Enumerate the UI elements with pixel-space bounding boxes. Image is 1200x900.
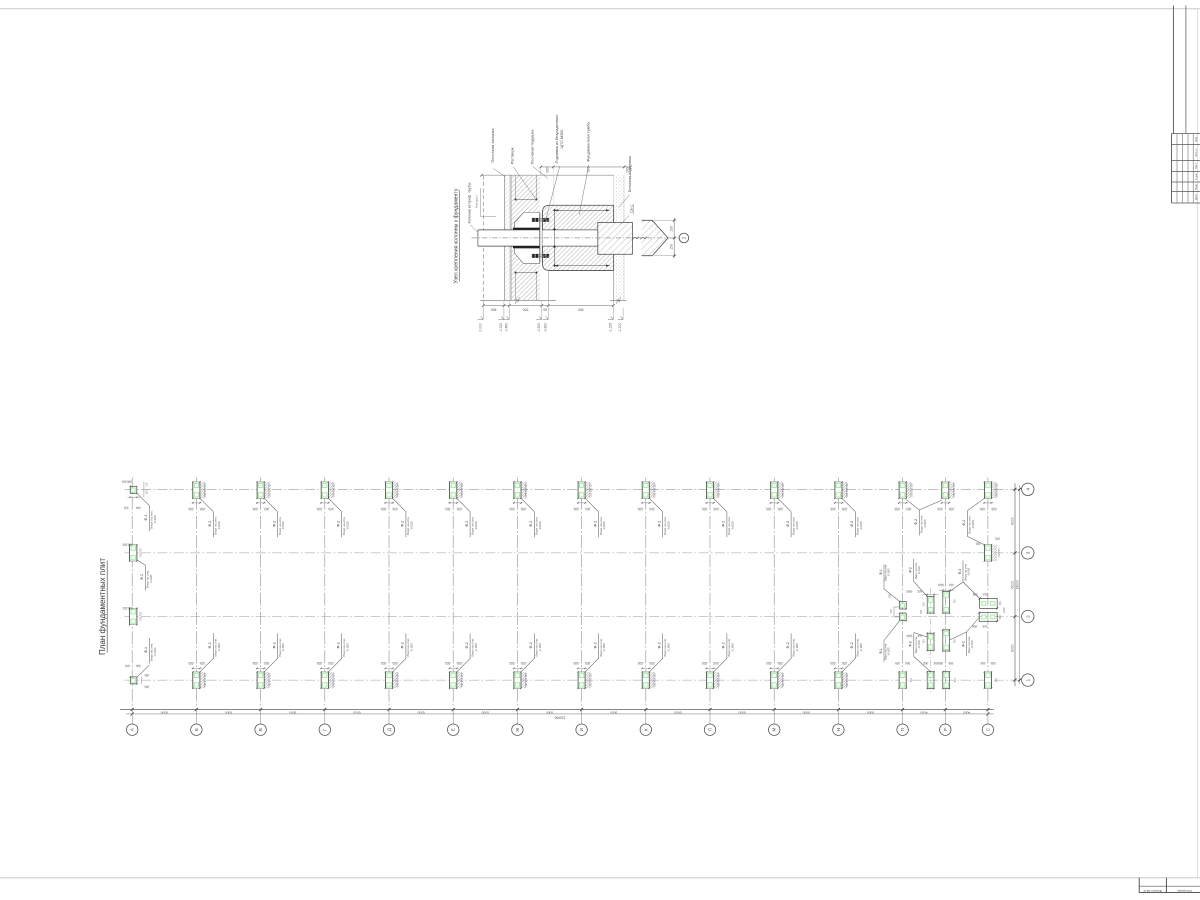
svg-text:-0.150: -0.150 — [499, 323, 503, 333]
svg-text:-0.620: -0.620 — [859, 521, 863, 530]
svg-text:Ф-2: Ф-2 — [401, 642, 405, 648]
svg-text:План фундаментных плит: План фундаментных плит — [98, 558, 107, 655]
svg-text:-0.620: -0.620 — [149, 574, 153, 583]
svg-text:200 500 200: 200 500 200 — [397, 483, 400, 497]
svg-text:-0.605: -0.605 — [887, 647, 891, 656]
svg-text:Узел крепления колонны к фунда: Узел крепления колонны к фундаменту — [453, 188, 459, 283]
svg-text:600: 600 — [992, 507, 997, 511]
svg-text:600: 600 — [574, 507, 579, 511]
svg-text:200 500 200: 200 500 200 — [525, 483, 528, 497]
svg-text:300 910 300: 300 910 300 — [525, 673, 528, 687]
svg-text:300: 300 — [144, 674, 149, 678]
svg-text:300: 300 — [128, 607, 133, 611]
svg-text:150: 150 — [125, 664, 130, 668]
svg-text:-0.620: -0.620 — [345, 521, 349, 530]
svg-text:300 910 300: 300 910 300 — [461, 673, 464, 687]
svg-text:Ф-1: Ф-1 — [144, 647, 148, 653]
svg-text:-0.620: -0.620 — [281, 521, 285, 530]
svg-text:200 500 200: 200 500 200 — [718, 483, 721, 497]
svg-text:575: 575 — [983, 625, 988, 629]
svg-text:Фундаментная тумба: Фундаментная тумба — [586, 121, 591, 161]
svg-text:Песчаная подушка: Песчаная подушка — [529, 129, 534, 165]
svg-text:-0.605: -0.605 — [971, 520, 975, 529]
svg-text:Ф-2: Ф-2 — [786, 521, 790, 527]
svg-text:-0.620: -0.620 — [538, 643, 542, 652]
svg-text:600: 600 — [200, 662, 205, 666]
svg-text:200 500 200: 200 500 200 — [782, 483, 785, 497]
svg-text:300 910 300: 300 910 300 — [204, 673, 207, 687]
svg-text:600: 600 — [714, 662, 719, 666]
svg-text:Ф-2: Ф-2 — [337, 642, 341, 648]
svg-text:-0.620: -0.620 — [602, 521, 606, 530]
svg-text:300: 300 — [127, 480, 132, 484]
svg-text:-0.620: -0.620 — [917, 640, 921, 649]
svg-text:В: В — [258, 728, 263, 731]
svg-text:910: 910 — [910, 677, 913, 682]
svg-text:600: 600 — [702, 507, 707, 511]
svg-text:И: И — [579, 728, 584, 731]
svg-text:600: 600 — [778, 662, 783, 666]
svg-text:Ф-2: Ф-2 — [529, 521, 533, 527]
svg-text:600: 600 — [649, 507, 654, 511]
svg-text:200 500 200: 200 500 200 — [910, 483, 913, 497]
svg-text:Кол.уч: Кол.уч — [1194, 148, 1198, 156]
svg-text:Ф-2: Ф-2 — [909, 641, 913, 647]
svg-text:600: 600 — [906, 662, 911, 666]
svg-text:Ф-2: Ф-2 — [658, 642, 662, 648]
svg-text:-0.620: -0.620 — [217, 643, 221, 652]
svg-text:600: 600 — [585, 662, 590, 666]
svg-text:Ф-2: Ф-2 — [529, 642, 533, 648]
svg-text:Ф-2: Ф-2 — [658, 521, 662, 527]
svg-text:600: 600 — [906, 507, 911, 511]
svg-text:600: 600 — [585, 507, 590, 511]
svg-text:300: 300 — [144, 685, 149, 689]
svg-text:200 500 200: 200 500 200 — [953, 483, 956, 497]
svg-text:Формат А2х3: Формат А2х3 — [1143, 889, 1162, 893]
svg-text:750: 750 — [953, 639, 956, 644]
svg-text:-0.620: -0.620 — [410, 643, 414, 652]
svg-text:Ф-2: Ф-2 — [272, 642, 276, 648]
svg-text:800: 800 — [972, 625, 977, 629]
svg-text:600: 600 — [638, 662, 643, 666]
svg-text:600: 600 — [264, 507, 269, 511]
svg-text:250: 250 — [890, 609, 893, 614]
svg-text:600: 600 — [264, 662, 269, 666]
svg-text:600: 600 — [253, 662, 258, 666]
svg-text:П: П — [900, 728, 905, 731]
svg-text:М: М — [772, 728, 777, 732]
svg-text:Ф-2: Ф-2 — [850, 642, 854, 648]
svg-text:600: 600 — [521, 507, 526, 511]
svg-text:512: 512 — [995, 537, 1000, 541]
svg-text:600: 600 — [714, 507, 719, 511]
svg-text:200 500 200: 200 500 200 — [268, 483, 271, 497]
svg-text:300 910 300: 300 910 300 — [782, 673, 785, 687]
svg-text:6000: 6000 — [1011, 581, 1015, 589]
svg-text:6000: 6000 — [1011, 517, 1015, 525]
svg-text:300: 300 — [136, 506, 141, 510]
svg-text:Низ (усл.): Низ (усл.) — [474, 195, 478, 208]
svg-text:200 500 200: 200 500 200 — [996, 483, 999, 497]
svg-text:500: 500 — [920, 609, 923, 614]
svg-text:Ф-2: Ф-2 — [908, 567, 912, 573]
svg-text:Ф-2: Ф-2 — [140, 574, 144, 580]
svg-text:Р: Р — [943, 728, 948, 731]
svg-text:600: 600 — [991, 662, 996, 666]
svg-text:300 910 300: 300 910 300 — [589, 673, 592, 687]
svg-text:600: 600 — [574, 662, 579, 666]
svg-text:600: 600 — [445, 662, 450, 666]
svg-text:Ф-2: Ф-2 — [208, 642, 212, 648]
svg-text:600: 600 — [317, 507, 322, 511]
svg-text:300 910 300: 300 910 300 — [654, 673, 657, 687]
svg-text:300: 300 — [136, 664, 141, 668]
svg-text:80: 80 — [543, 308, 547, 312]
svg-text:600: 600 — [253, 507, 258, 511]
svg-text:600: 600 — [328, 507, 333, 511]
svg-text:-0.620: -0.620 — [410, 521, 414, 530]
svg-text:500: 500 — [999, 601, 1002, 606]
svg-text:Бетонная подготовка: Бетонная подготовка — [628, 155, 632, 192]
svg-text:600: 600 — [766, 507, 771, 511]
svg-text:300: 300 — [128, 543, 133, 547]
svg-text:Ф-2: Ф-2 — [914, 519, 918, 525]
svg-text:-0.620: -0.620 — [966, 568, 970, 577]
svg-text:-0.620: -0.620 — [666, 521, 670, 530]
svg-text:200 500 200: 200 500 200 — [654, 483, 657, 497]
svg-text:600: 600 — [393, 507, 398, 511]
svg-text:-0.620: -0.620 — [543, 323, 547, 333]
svg-text:600: 600 — [778, 507, 783, 511]
svg-text:200 500 200: 200 500 200 — [461, 483, 464, 497]
svg-text:600: 600 — [949, 507, 954, 511]
svg-text:Н: Н — [836, 728, 841, 731]
svg-text:ЦПС М300: ЦПС М300 — [560, 130, 564, 149]
svg-text:Ф-2: Ф-2 — [722, 642, 726, 648]
svg-text:Ф-1: Ф-1 — [879, 569, 883, 575]
svg-text:6000: 6000 — [1011, 644, 1015, 652]
svg-text:-0.620: -0.620 — [917, 566, 921, 575]
svg-text:600: 600 — [393, 662, 398, 666]
svg-text:600: 600 — [831, 507, 836, 511]
svg-text:300 910 300: 300 910 300 — [846, 673, 849, 687]
svg-text:600: 600 — [189, 507, 194, 511]
svg-text:575: 575 — [983, 593, 988, 597]
svg-text:-0.620: -0.620 — [281, 643, 285, 652]
svg-text:-0.620: -0.620 — [153, 647, 157, 656]
svg-text:600: 600 — [189, 662, 194, 666]
svg-text:750: 750 — [923, 639, 926, 644]
svg-text:Л: Л — [708, 728, 713, 731]
svg-text:900: 900 — [578, 308, 584, 312]
svg-text:-1.225: -1.225 — [608, 323, 612, 333]
svg-text:Ф-2: Ф-2 — [962, 520, 966, 526]
svg-text:300 910 300: 300 910 300 — [333, 673, 336, 687]
svg-text:1000: 1000 — [938, 583, 944, 587]
svg-text:А: А — [130, 728, 135, 731]
svg-text:150: 150 — [669, 244, 673, 250]
svg-text:750: 750 — [953, 599, 956, 604]
svg-text:200 500 200: 200 500 200 — [589, 483, 592, 497]
svg-text:Изм.: Изм. — [1194, 136, 1198, 142]
svg-text:-0.450: -0.450 — [504, 323, 508, 333]
svg-text:-0.620: -0.620 — [859, 643, 863, 652]
svg-text:100: 100 — [146, 482, 149, 487]
svg-text:-0.620: -0.620 — [538, 521, 542, 530]
svg-text:750 750: 750 750 — [998, 548, 1001, 557]
svg-text:N док: N док — [1194, 173, 1198, 181]
svg-text:600: 600 — [895, 662, 900, 666]
svg-text:3000: 3000 — [1003, 607, 1006, 613]
svg-text:Ф-2: Ф-2 — [786, 642, 790, 648]
svg-text:Ф-2: Ф-2 — [593, 642, 597, 648]
svg-text:Дата: Дата — [1194, 194, 1198, 200]
svg-text:Ф-2: Ф-2 — [272, 521, 276, 527]
svg-text:-0.620: -0.620 — [217, 521, 221, 530]
svg-text:-0.620: -0.620 — [666, 643, 670, 652]
svg-text:600: 600 — [649, 662, 654, 666]
svg-text:Д: Д — [387, 728, 392, 731]
svg-text:-0.620: -0.620 — [345, 643, 349, 652]
svg-text:150: 150 — [669, 226, 673, 232]
svg-text:600: 600 — [457, 662, 462, 666]
svg-text:600: 600 — [938, 662, 943, 666]
svg-text:300 910 300: 300 910 300 — [718, 673, 721, 687]
svg-text:600: 600 — [766, 662, 771, 666]
svg-text:600: 600 — [831, 662, 836, 666]
svg-text:1000: 1000 — [906, 590, 912, 594]
svg-text:750 750: 750 750 — [140, 612, 143, 621]
svg-text:600: 600 — [381, 507, 386, 511]
svg-text:200 500 200: 200 500 200 — [204, 483, 207, 497]
svg-text:Ф-2: Ф-2 — [961, 641, 965, 647]
svg-text:-0.620: -0.620 — [795, 643, 799, 652]
svg-text:200 500 200: 200 500 200 — [333, 483, 336, 497]
svg-text:600: 600 — [842, 662, 847, 666]
svg-text:360: 360 — [976, 542, 981, 546]
svg-text:Ф-2: Ф-2 — [208, 521, 212, 527]
svg-text:600: 600 — [317, 662, 322, 666]
svg-text:600: 600 — [457, 507, 462, 511]
svg-text:Подливка из безусадочного: Подливка из безусадочного — [555, 115, 559, 164]
svg-text:600: 600 — [521, 662, 526, 666]
svg-text:Подп.: Подп. — [1194, 183, 1198, 190]
svg-text:-1.100: -1.100 — [618, 323, 622, 333]
svg-text:Ф-1: Ф-1 — [144, 515, 148, 521]
svg-text:600: 600 — [937, 507, 942, 511]
svg-text:600: 600 — [200, 507, 205, 511]
svg-text:500: 500 — [999, 615, 1002, 620]
svg-text:-0.620: -0.620 — [153, 515, 157, 524]
svg-text:Ф-2: Ф-2 — [401, 521, 405, 527]
svg-text:600: 600 — [842, 507, 847, 511]
svg-text:600: 600 — [510, 507, 515, 511]
svg-text:300 910 300: 300 910 300 — [397, 673, 400, 687]
svg-text:100: 100 — [545, 167, 549, 173]
svg-text:600: 600 — [328, 662, 333, 666]
svg-text:Песчаная засыпка: Песчаная засыпка — [490, 128, 495, 163]
svg-text:Ф-2: Ф-2 — [593, 521, 597, 527]
svg-text:Колонна из проф. трубы: Колонна из проф. трубы — [467, 182, 471, 223]
svg-text:-0.605: -0.605 — [887, 568, 891, 577]
svg-text:Ж: Ж — [515, 728, 520, 732]
svg-text:750: 750 — [923, 602, 926, 607]
svg-text:600: 600 — [923, 662, 928, 666]
svg-text:600: 600 — [981, 662, 986, 666]
svg-text:Ф-2: Ф-2 — [337, 521, 341, 527]
svg-text:-0.620: -0.620 — [602, 643, 606, 652]
svg-text:-0.620: -0.620 — [474, 521, 478, 530]
svg-text:Лист: Лист — [1194, 162, 1198, 168]
svg-text:Е: Е — [451, 728, 456, 731]
svg-text:300 910 300: 300 910 300 — [268, 673, 271, 687]
svg-text:150: 150 — [124, 506, 129, 510]
svg-text:600: 600 — [638, 507, 643, 511]
svg-text:Ф-1: Ф-1 — [879, 648, 883, 654]
svg-text:-0.620: -0.620 — [970, 640, 974, 649]
svg-text:Б: Б — [194, 728, 199, 731]
svg-text:Ростверк: Ростверк — [510, 147, 515, 164]
svg-text:С: С — [985, 728, 990, 731]
svg-text:Ф-2: Ф-2 — [722, 521, 726, 527]
svg-text:600: 600 — [980, 507, 985, 511]
svg-text:600: 600 — [702, 662, 707, 666]
svg-text:0.000: 0.000 — [478, 323, 482, 332]
svg-text:Ф-2: Ф-2 — [850, 521, 854, 527]
svg-text:600: 600 — [949, 662, 954, 666]
svg-text:Ф-2: Ф-2 — [465, 521, 469, 527]
svg-text:1000: 1000 — [906, 634, 912, 638]
svg-text:910: 910 — [995, 677, 998, 682]
svg-text:Ск-1: Ск-1 — [630, 205, 634, 213]
svg-text:К: К — [643, 728, 648, 731]
svg-text:600: 600 — [895, 507, 900, 511]
svg-text:102000: 102000 — [554, 715, 565, 719]
svg-text:-0.620: -0.620 — [731, 521, 735, 530]
svg-text:910: 910 — [954, 677, 957, 682]
svg-text:-0.620: -0.620 — [731, 643, 735, 652]
svg-text:300: 300 — [146, 490, 149, 495]
svg-text:600: 600 — [510, 662, 515, 666]
svg-text:18000: 18000 — [1015, 580, 1019, 590]
svg-text:750 750: 750 750 — [140, 548, 143, 557]
svg-text:500: 500 — [523, 308, 529, 312]
svg-text:-0.620: -0.620 — [923, 519, 927, 528]
svg-text:800: 800 — [491, 308, 497, 312]
svg-text:Ф-2: Ф-2 — [958, 569, 962, 575]
svg-text:600: 600 — [381, 662, 386, 666]
svg-text:600: 600 — [445, 507, 450, 511]
svg-text:470: 470 — [949, 583, 954, 587]
svg-text:Копировал: Копировал — [1177, 889, 1192, 893]
svg-text:-0.500: -0.500 — [537, 323, 541, 333]
svg-text:Ф-2: Ф-2 — [465, 642, 469, 648]
svg-text:-0.620: -0.620 — [474, 643, 478, 652]
svg-text:200 500 200: 200 500 200 — [846, 483, 849, 497]
svg-text:-0.620: -0.620 — [795, 521, 799, 530]
